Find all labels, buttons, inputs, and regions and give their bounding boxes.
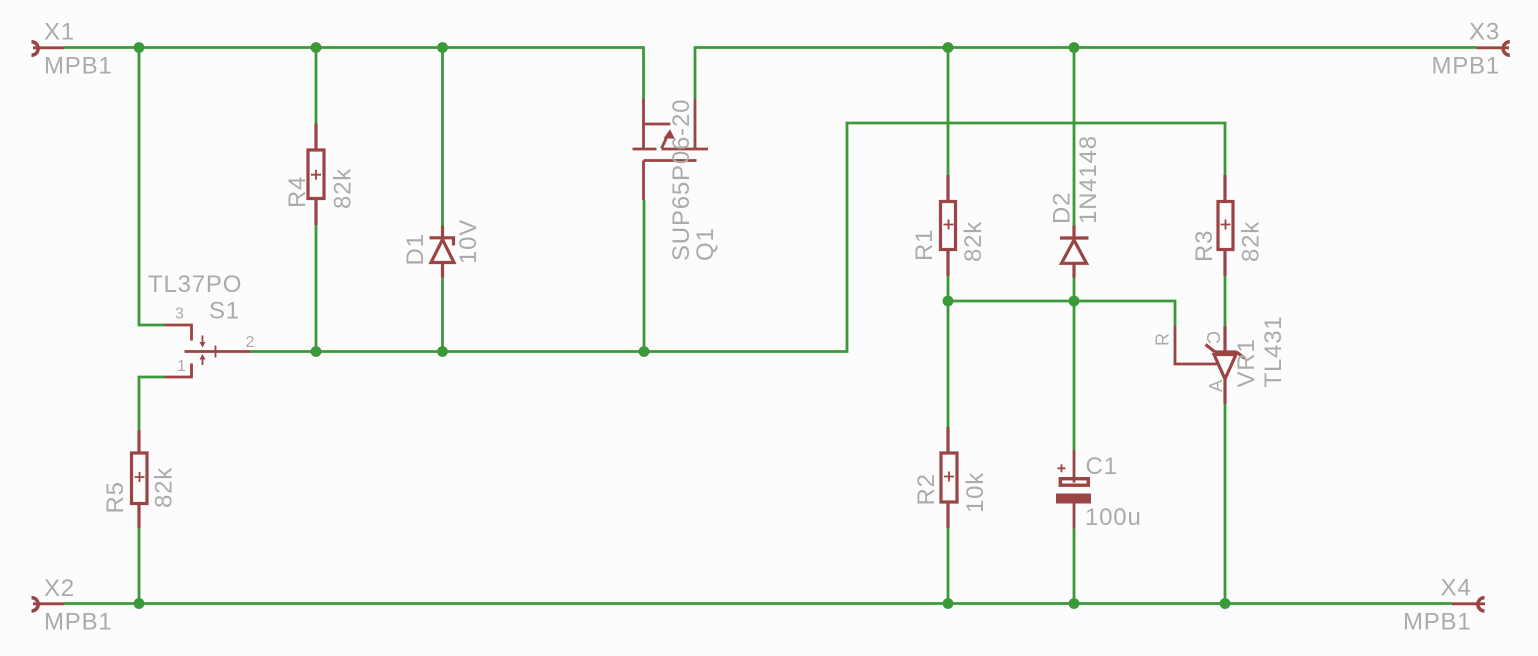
svg-text:TL37PO: TL37PO bbox=[148, 271, 242, 298]
svg-text:C: C bbox=[1203, 331, 1223, 344]
svg-text:D2: D2 bbox=[1049, 192, 1076, 224]
svg-text:82k: 82k bbox=[330, 168, 357, 209]
svg-text:10k: 10k bbox=[962, 472, 989, 513]
svg-text:TL431: TL431 bbox=[1260, 315, 1287, 387]
svg-text:X1: X1 bbox=[44, 19, 75, 46]
svg-text:82k: 82k bbox=[151, 467, 178, 508]
svg-text:MPB1: MPB1 bbox=[1403, 609, 1472, 636]
svg-text:10V: 10V bbox=[455, 219, 482, 264]
svg-text:X2: X2 bbox=[44, 575, 75, 602]
svg-text:100u: 100u bbox=[1085, 504, 1142, 531]
svg-text:1: 1 bbox=[177, 358, 186, 375]
svg-text:X3: X3 bbox=[1469, 19, 1500, 46]
svg-text:D1: D1 bbox=[402, 233, 429, 265]
svg-text:R4: R4 bbox=[284, 176, 311, 208]
svg-text:MPB1: MPB1 bbox=[1431, 53, 1500, 80]
svg-text:1N4148: 1N4148 bbox=[1075, 135, 1102, 224]
svg-text:R5: R5 bbox=[102, 481, 129, 513]
svg-text:MPB1: MPB1 bbox=[44, 53, 113, 80]
svg-text:3: 3 bbox=[175, 306, 184, 323]
svg-text:A: A bbox=[1206, 380, 1226, 392]
svg-text:SUP65P06-20: SUP65P06-20 bbox=[668, 99, 695, 261]
svg-text:C1: C1 bbox=[1086, 453, 1118, 480]
svg-text:R1: R1 bbox=[911, 229, 938, 261]
svg-text:Q1: Q1 bbox=[692, 227, 719, 261]
svg-text:82k: 82k bbox=[1238, 221, 1265, 262]
svg-text:R: R bbox=[1153, 333, 1173, 346]
svg-text:R2: R2 bbox=[913, 473, 940, 505]
svg-text:R3: R3 bbox=[1191, 230, 1218, 262]
svg-text:MPB1: MPB1 bbox=[44, 609, 113, 636]
svg-text:S1: S1 bbox=[209, 298, 240, 325]
svg-text:82k: 82k bbox=[960, 221, 987, 262]
svg-text:2: 2 bbox=[246, 334, 255, 351]
svg-text:X4: X4 bbox=[1441, 575, 1472, 602]
svg-text:VR1: VR1 bbox=[1233, 338, 1260, 387]
